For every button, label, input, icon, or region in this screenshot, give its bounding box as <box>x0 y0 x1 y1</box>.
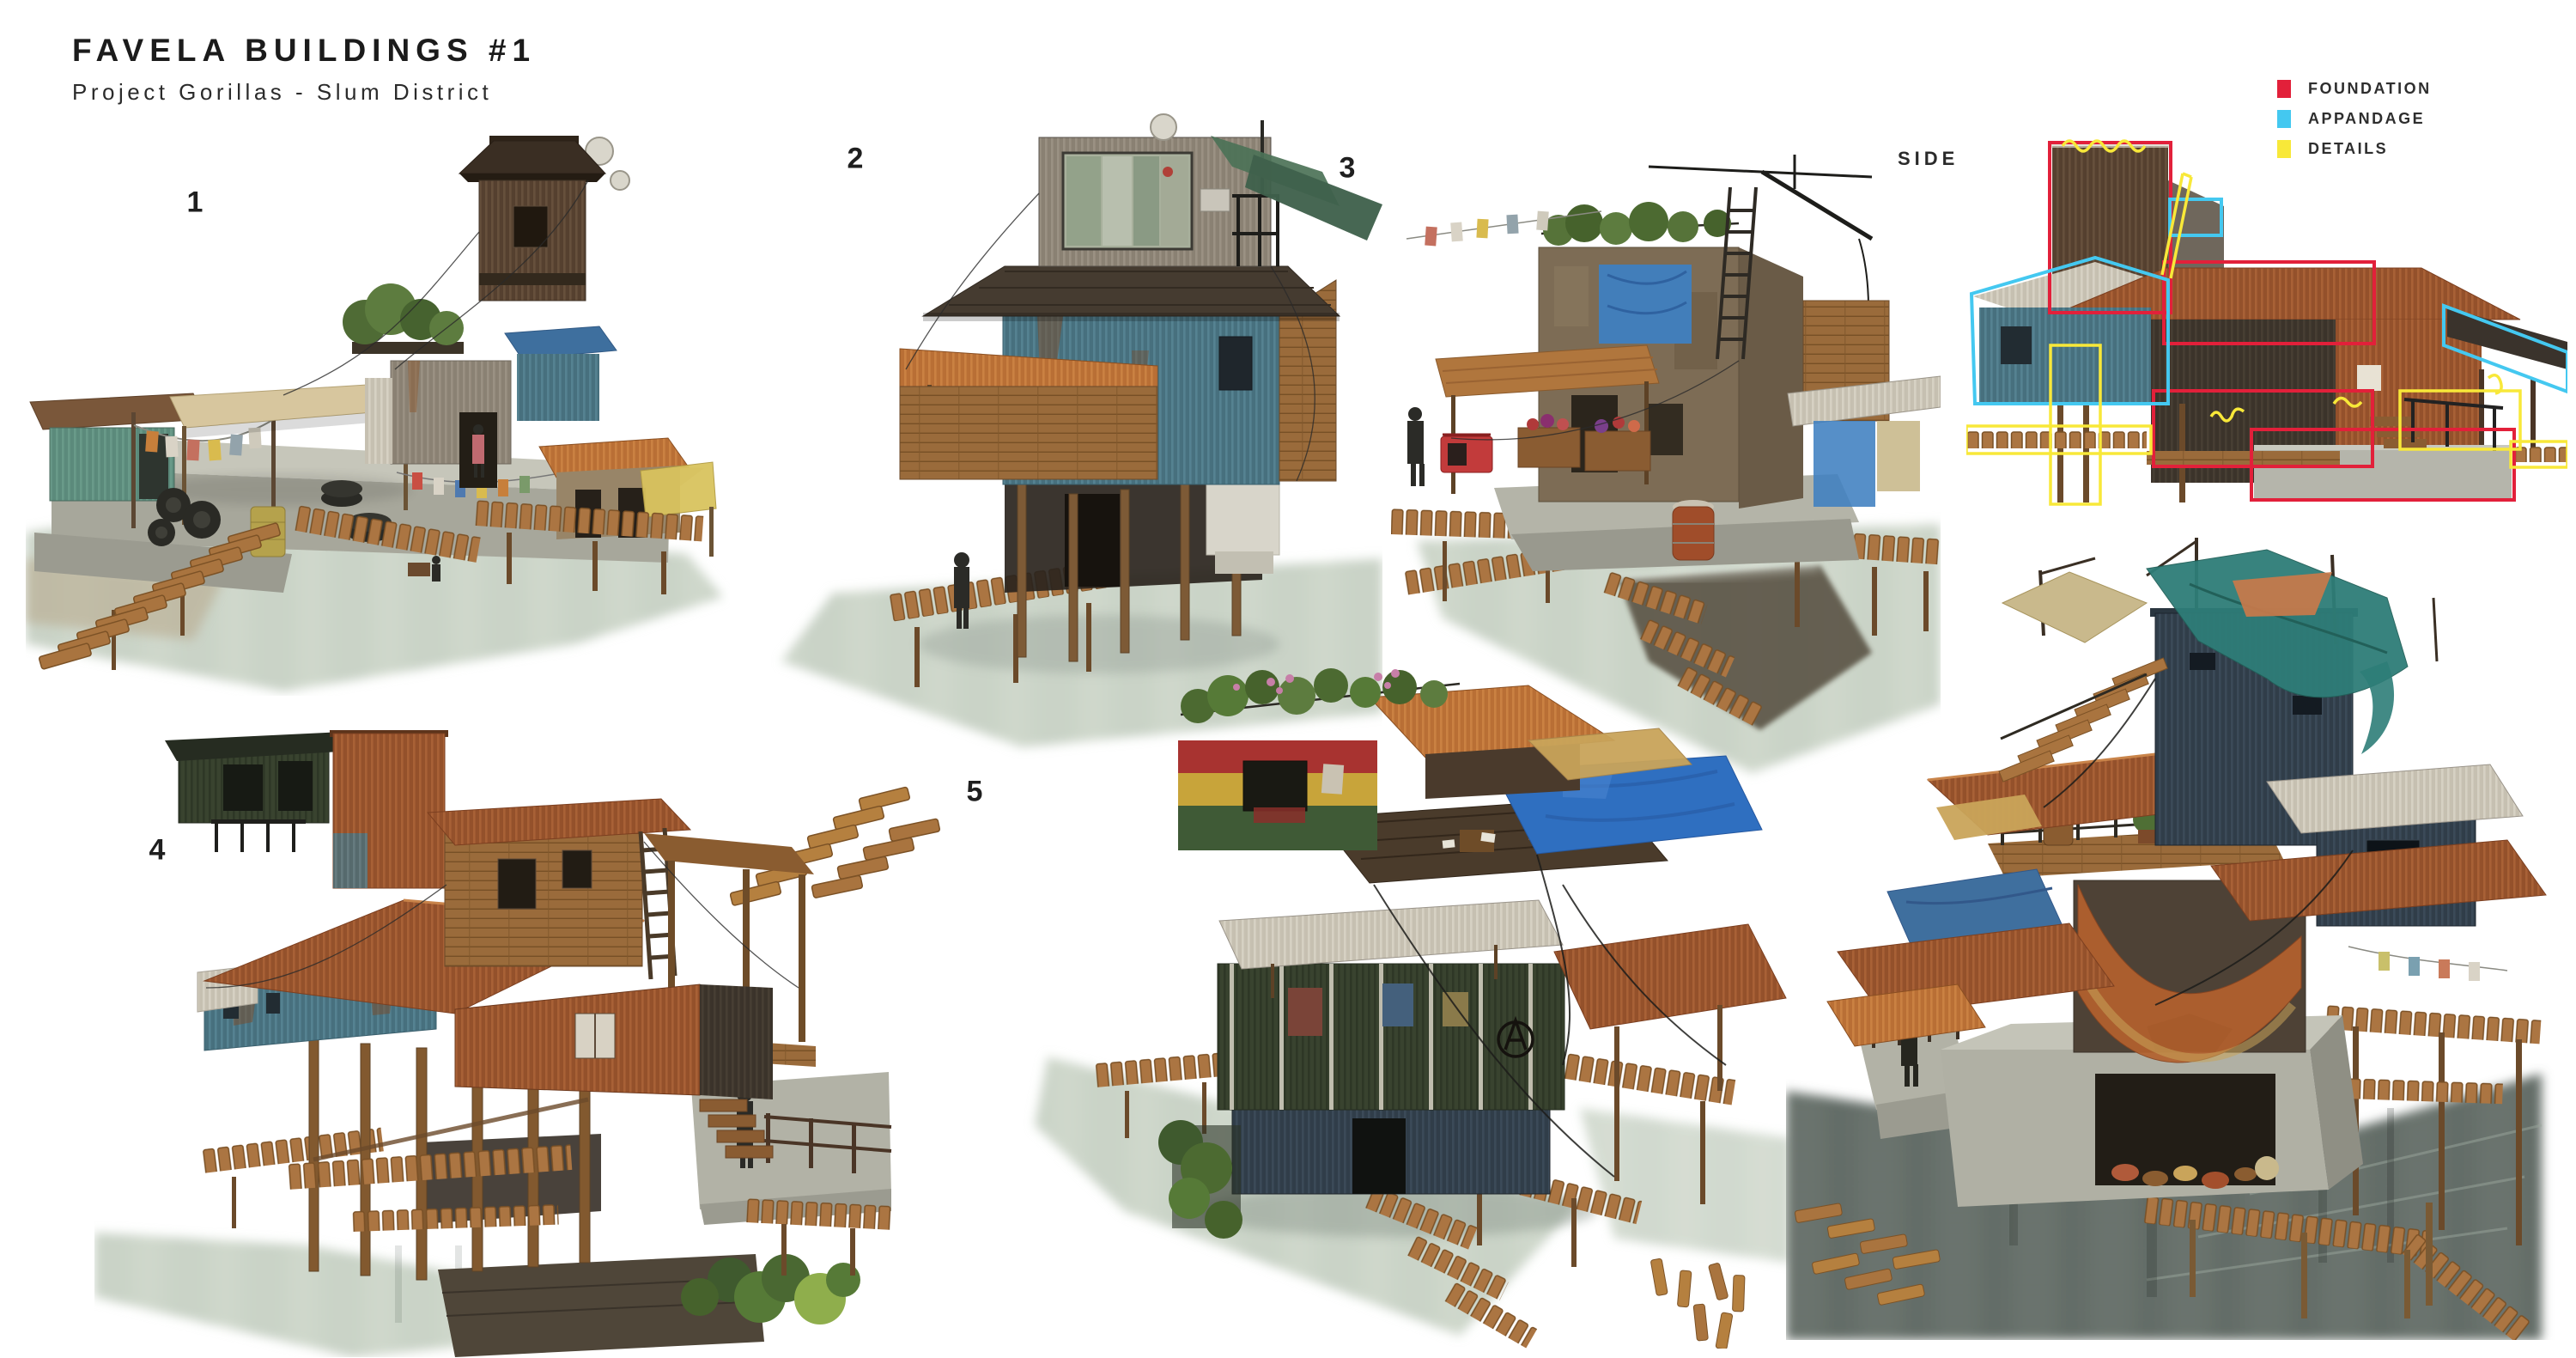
rust-panel <box>330 730 448 888</box>
wood-fence <box>900 387 1157 479</box>
tile-roof <box>923 266 1340 321</box>
watchtower <box>459 136 629 301</box>
water-right <box>1580 1108 1790 1263</box>
legend-swatch-foundation <box>2277 80 2291 98</box>
top-box <box>1039 114 1279 266</box>
lower-band <box>1232 1108 1550 1194</box>
scattered-planks <box>1650 1258 1745 1349</box>
legend-row-foundation: FOUNDATION <box>2277 80 2432 98</box>
page-subtitle: Project Gorillas - Slum District <box>72 79 536 106</box>
stone-wall <box>438 1254 860 1357</box>
satellite-dish-icon <box>611 171 629 190</box>
building-6-illustration <box>1786 524 2559 1340</box>
blue-tarp-right <box>1814 421 1875 507</box>
satellite-dish-icon <box>1151 114 1176 140</box>
legend-label-foundation: FOUNDATION <box>2308 80 2432 98</box>
building-1-illustration <box>26 129 730 696</box>
blue-tarp <box>1599 265 1692 344</box>
mid-rust-wall <box>455 984 700 1095</box>
green-shed <box>165 732 355 852</box>
green-wall <box>1218 964 1564 1110</box>
side-view-illustration <box>1966 120 2567 507</box>
yellow-awning <box>641 462 716 517</box>
rust-barrel <box>1673 500 1714 560</box>
dark-corr-section <box>700 984 773 1099</box>
doorway-figure <box>459 412 497 488</box>
tan-canopy <box>2002 572 2147 642</box>
building-4-illustration <box>94 730 893 1357</box>
page-title: FAVELA BUILDINGS #1 <box>72 33 536 69</box>
white-block <box>1206 479 1279 574</box>
wood-house <box>428 799 690 966</box>
building-5-illustration <box>1013 661 1795 1349</box>
header: FAVELA BUILDINGS #1 Project Gorillas - S… <box>72 33 536 106</box>
clothesline-right <box>2348 947 2507 981</box>
generator <box>1441 435 1492 472</box>
ac-unit <box>1200 189 1230 211</box>
human-figure <box>1407 407 1425 486</box>
rasta-shack <box>1178 740 1377 850</box>
roof-garden <box>1541 202 1739 246</box>
blue-tarp-shack <box>505 326 617 421</box>
